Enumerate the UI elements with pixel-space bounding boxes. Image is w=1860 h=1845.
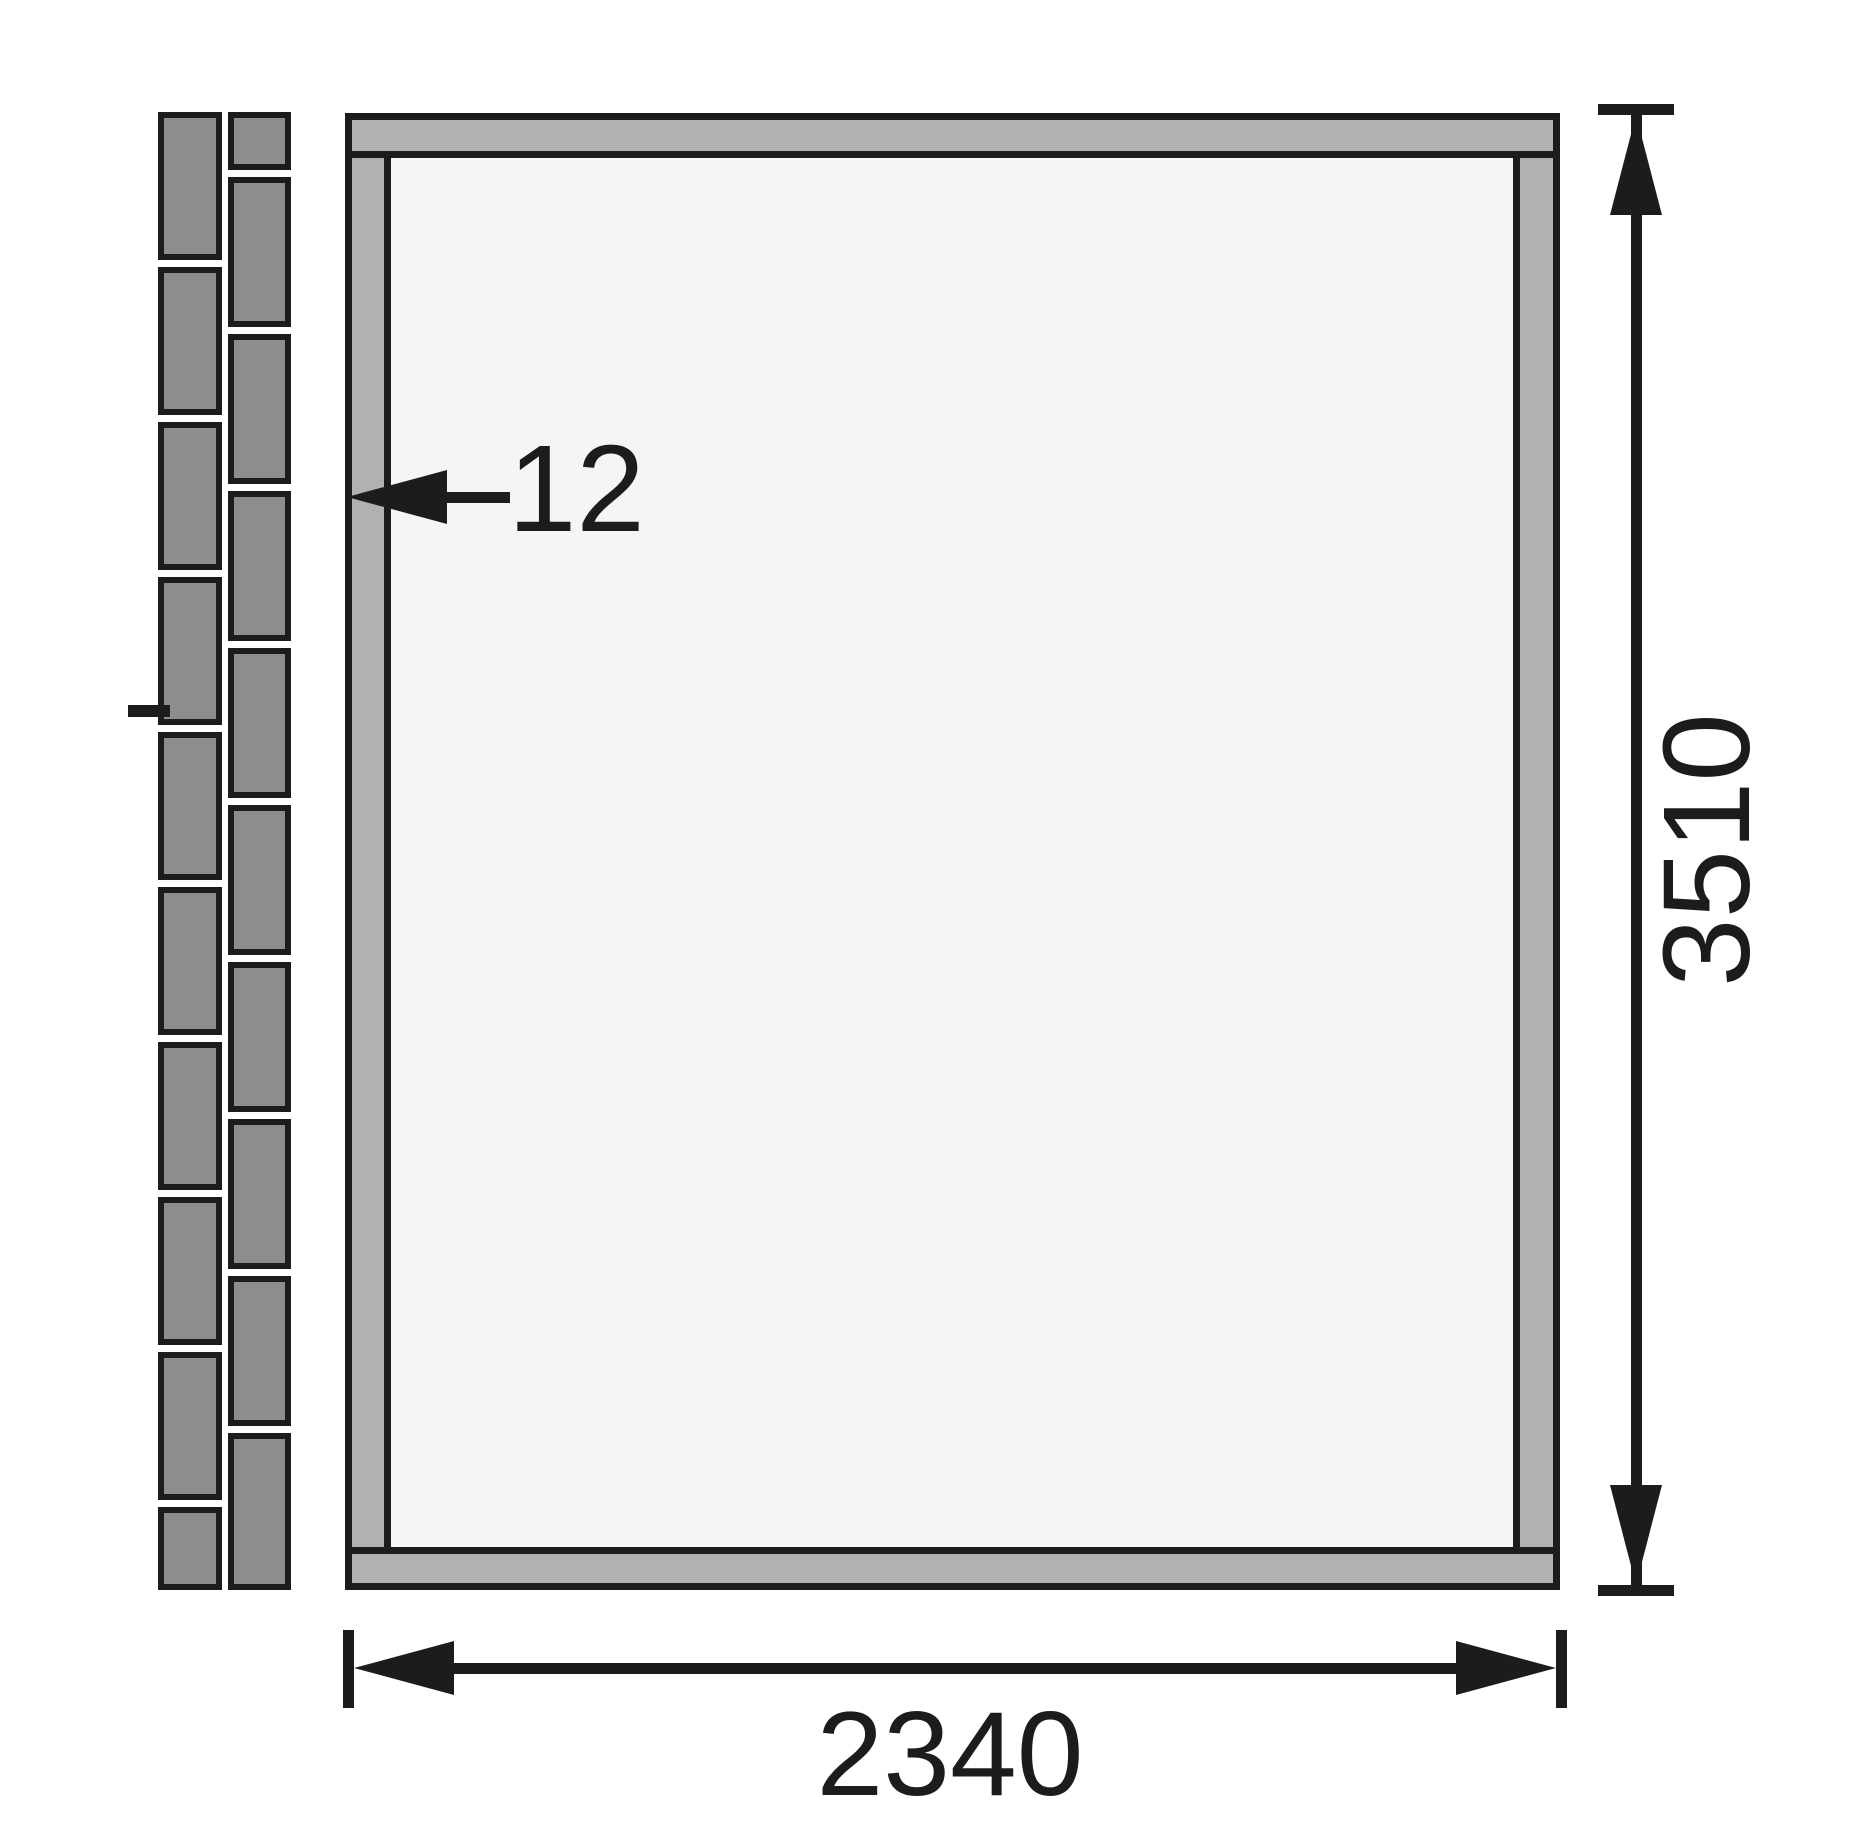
brick bbox=[158, 1352, 222, 1500]
brick bbox=[228, 334, 291, 484]
wall-reference-tick bbox=[128, 705, 170, 717]
width-dimension-arrow-left-icon bbox=[354, 1641, 454, 1695]
wall-thickness-label: 12 bbox=[508, 428, 645, 551]
brick bbox=[158, 267, 222, 415]
brick-wall-inner-column bbox=[228, 112, 291, 1590]
width-dimension-label: 2340 bbox=[700, 1694, 1200, 1814]
brick bbox=[228, 1276, 291, 1426]
brick bbox=[158, 1507, 222, 1590]
wall-right bbox=[1513, 158, 1553, 1547]
wall-bottom bbox=[352, 1547, 1553, 1583]
height-dimension-label: 3510 bbox=[1646, 680, 1770, 1020]
brick bbox=[158, 1197, 222, 1345]
brick bbox=[158, 112, 222, 260]
brick bbox=[228, 648, 291, 798]
width-dimension-arrow-right-icon bbox=[1456, 1641, 1556, 1695]
brick bbox=[158, 1042, 222, 1190]
brick bbox=[228, 805, 291, 955]
width-dimension-tick-right bbox=[1556, 1630, 1567, 1708]
width-dimension-line bbox=[445, 1663, 1465, 1674]
height-dimension-tick-bottom bbox=[1598, 1585, 1674, 1596]
wall-thickness-arrow-icon bbox=[347, 470, 447, 524]
width-dimension-tick-left bbox=[343, 1630, 354, 1708]
wall-thickness-dimension-line bbox=[440, 492, 510, 503]
wall-top bbox=[352, 120, 1553, 158]
brick bbox=[228, 962, 291, 1112]
floor-plan-diagram: 12 3510 2340 bbox=[0, 0, 1860, 1845]
wall-left bbox=[352, 158, 391, 1547]
brick bbox=[158, 577, 222, 725]
room-outline bbox=[345, 113, 1560, 1590]
brick bbox=[228, 1433, 291, 1590]
brick bbox=[158, 422, 222, 570]
brick bbox=[228, 491, 291, 641]
brick bbox=[228, 177, 291, 327]
brick bbox=[158, 887, 222, 1035]
brick bbox=[228, 1119, 291, 1269]
brick bbox=[158, 732, 222, 880]
height-dimension-tick-top bbox=[1598, 104, 1674, 115]
brick bbox=[228, 112, 291, 170]
brick-wall-outer-column bbox=[158, 112, 222, 1590]
